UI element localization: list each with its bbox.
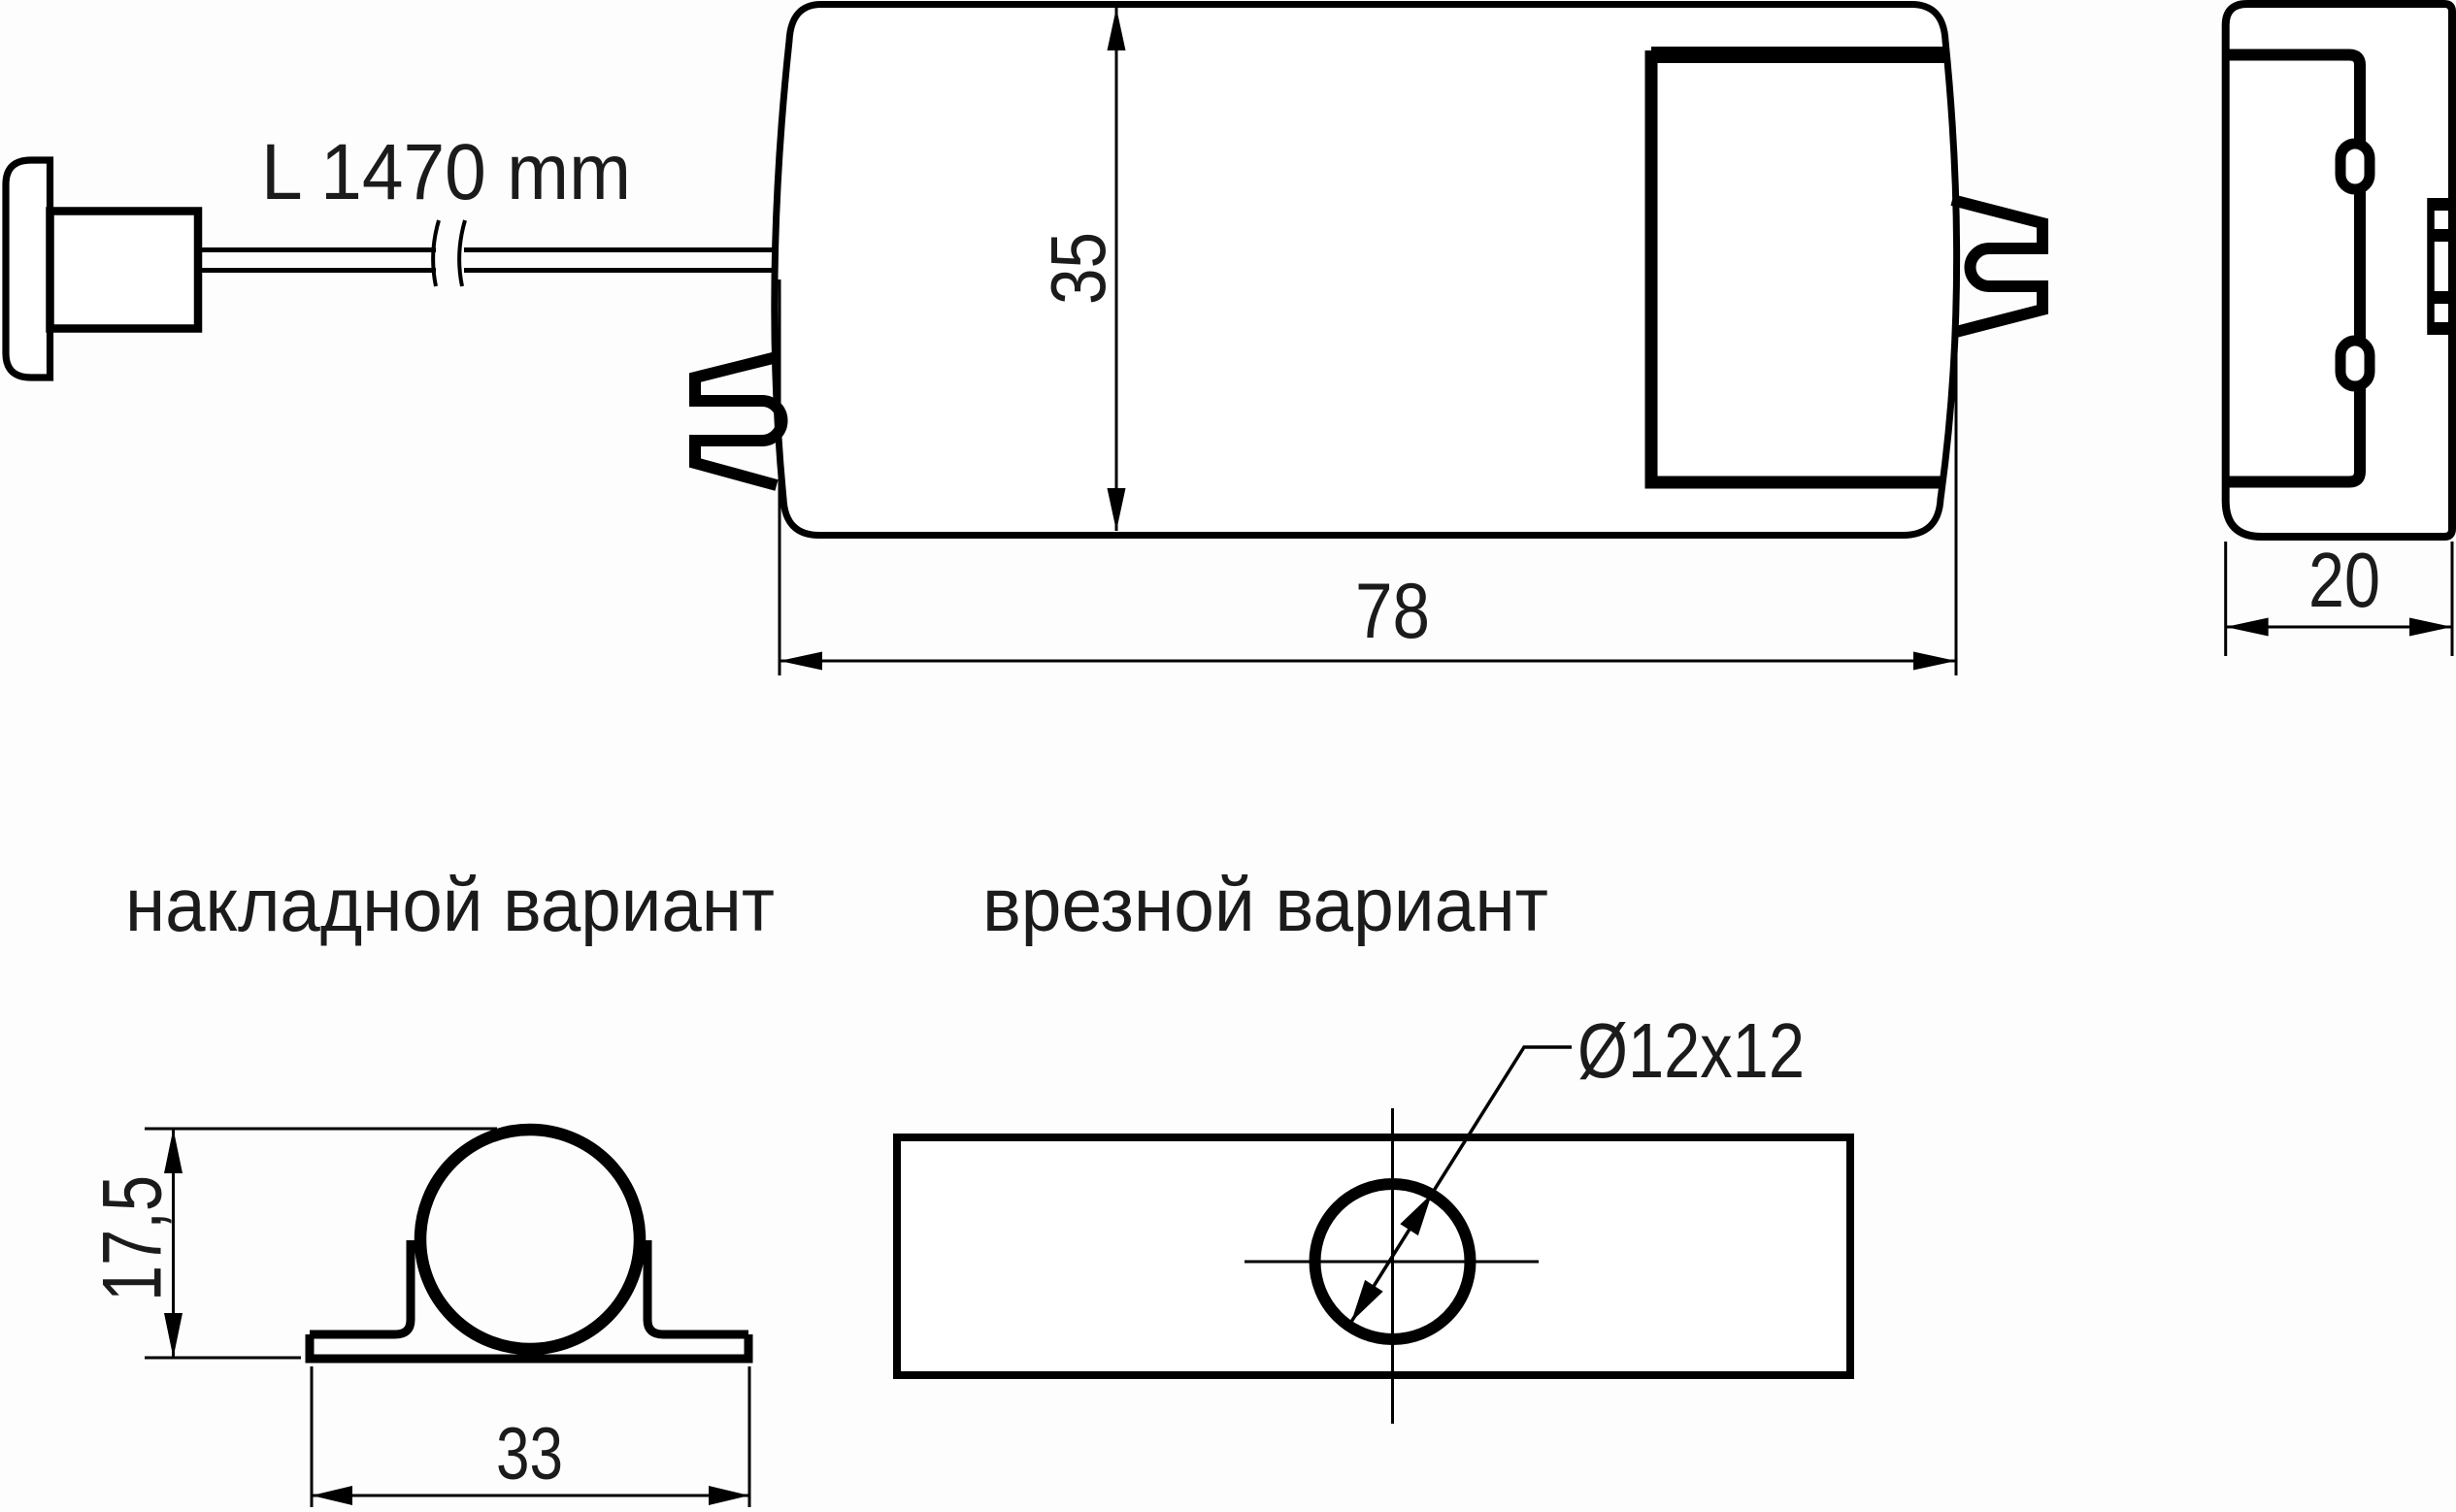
svg-text:33: 33 bbox=[496, 1413, 563, 1496]
svg-text:L 1470 mm: L 1470 mm bbox=[261, 128, 631, 216]
svg-text:17,5: 17,5 bbox=[86, 1175, 180, 1301]
svg-text:врезной вариант: врезной вариант bbox=[982, 862, 1548, 947]
svg-text:20: 20 bbox=[2308, 537, 2380, 623]
svg-text:накладной вариант: накладной вариант bbox=[125, 862, 775, 947]
svg-text:78: 78 bbox=[1355, 568, 1430, 655]
svg-text:Ø12x12: Ø12x12 bbox=[1577, 1007, 1805, 1094]
svg-text:35: 35 bbox=[1035, 232, 1121, 305]
